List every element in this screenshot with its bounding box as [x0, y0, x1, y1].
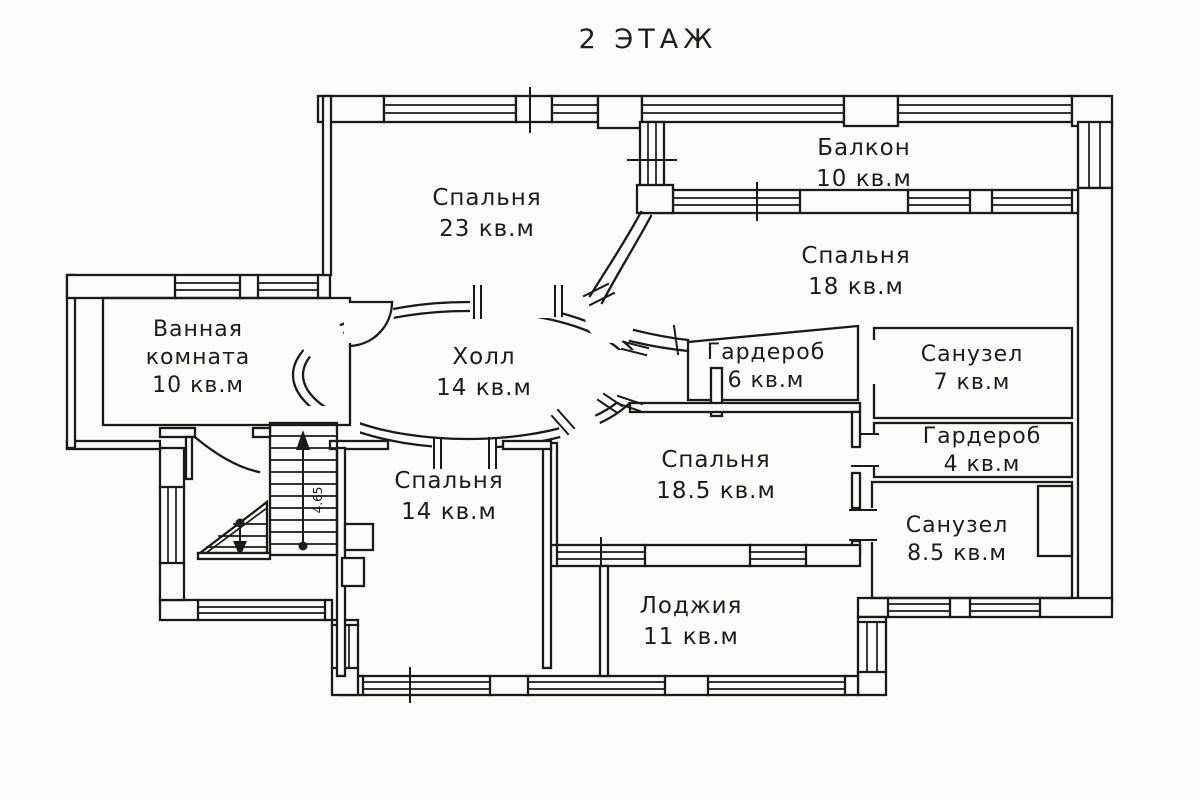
- room-area: 10 кв.м: [816, 164, 912, 195]
- room-name: Спальня: [801, 241, 910, 272]
- room-name: Холл: [436, 342, 532, 373]
- page-title: 2 ЭТАЖ: [579, 24, 718, 55]
- wc-8-5-shaft: [1038, 486, 1072, 556]
- floor-plan-page: 4.65: [0, 0, 1200, 800]
- room-name: Ванная комната: [113, 316, 283, 372]
- stair-door-arc: [196, 438, 259, 472]
- room-area: 6 кв.м: [707, 367, 826, 395]
- room-name: Гардероб: [923, 423, 1042, 451]
- room-name: Спальня: [394, 466, 503, 497]
- stairs-dimension-label: 4.65: [311, 487, 325, 514]
- room-area: 4 кв.м: [923, 451, 1042, 479]
- room-area: 10 кв.м: [113, 372, 283, 400]
- wall-pilaster: [345, 524, 373, 550]
- room-name: Балкон: [816, 133, 912, 164]
- room-label-bedroom-18: Спальня 18 кв.м: [801, 241, 910, 303]
- room-name: Лоджия: [640, 591, 743, 622]
- floor-plan-drawing: 4.65: [0, 0, 1200, 800]
- stair-winder: [200, 502, 267, 553]
- room-name: Санузел: [921, 341, 1024, 369]
- room-label-bedroom-18-5: Спальня 18.5 кв.м: [656, 445, 776, 507]
- room-label-bedroom-14: Спальня 14 кв.м: [394, 466, 503, 528]
- wall-shaft: [342, 558, 364, 586]
- room-area: 7 кв.м: [921, 369, 1024, 397]
- room-name: Гардероб: [707, 339, 826, 367]
- room-label-wardrobe-6: Гардероб 6 кв.м: [707, 339, 826, 395]
- room-label-wardrobe-4: Гардероб 4 кв.м: [923, 423, 1042, 479]
- room-label-bathroom-10: Ванная комната 10 кв.м: [113, 316, 283, 400]
- room-name: Спальня: [656, 445, 776, 476]
- room-label-wc-8-5: Санузел 8.5 кв.м: [906, 512, 1009, 568]
- room-area: 14 кв.м: [436, 373, 532, 404]
- loggia-walls: [600, 566, 608, 676]
- room-label-balcony-10: Балкон 10 кв.м: [816, 133, 912, 195]
- room-label-wc-7: Санузел 7 кв.м: [921, 341, 1024, 397]
- room-name: Спальня: [432, 183, 541, 214]
- room-area: 18 кв.м: [801, 272, 910, 303]
- room-area: 18.5 кв.м: [656, 476, 776, 507]
- room-label-bedroom-23: Спальня 23 кв.м: [432, 183, 541, 245]
- room-area: 11 кв.м: [640, 622, 743, 653]
- room-area: 14 кв.м: [394, 497, 503, 528]
- room-name: Санузел: [906, 512, 1009, 540]
- room-label-hall-14: Холл 14 кв.м: [436, 342, 532, 404]
- room-area: 8.5 кв.м: [906, 540, 1009, 568]
- room-area: 23 кв.м: [432, 214, 541, 245]
- room-label-loggia-11: Лоджия 11 кв.м: [640, 591, 743, 653]
